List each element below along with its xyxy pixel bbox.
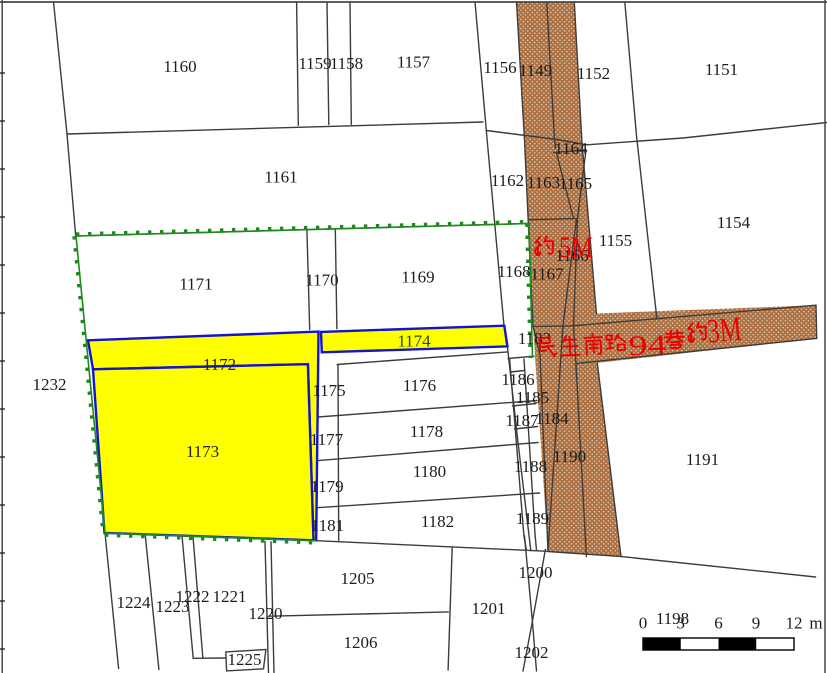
svg-text:1155: 1155 (599, 231, 632, 250)
svg-text:1225: 1225 (228, 650, 262, 669)
svg-text:1186: 1186 (501, 370, 534, 389)
svg-text:1152: 1152 (577, 64, 610, 83)
svg-text:1164: 1164 (554, 139, 588, 158)
svg-text:1174: 1174 (397, 332, 431, 351)
svg-text:1200: 1200 (519, 563, 553, 582)
svg-text:1177: 1177 (310, 430, 344, 449)
svg-text:1201: 1201 (472, 599, 506, 618)
svg-text:1157: 1157 (397, 53, 431, 72)
svg-text:0: 0 (639, 614, 648, 633)
svg-text:1206: 1206 (344, 633, 378, 652)
svg-text:1182: 1182 (421, 512, 454, 531)
svg-text:1163: 1163 (527, 173, 560, 192)
svg-text:1156: 1156 (483, 58, 516, 77)
svg-text:1176: 1176 (403, 376, 436, 395)
svg-text:12: 12 (786, 614, 803, 633)
svg-text:1167: 1167 (530, 265, 564, 284)
svg-text:1162: 1162 (491, 171, 524, 190)
svg-text:1165: 1165 (559, 174, 592, 193)
svg-text:1168: 1168 (497, 262, 530, 281)
svg-text:1205: 1205 (341, 569, 375, 588)
svg-text:1232: 1232 (33, 375, 67, 394)
svg-text:1151: 1151 (705, 60, 738, 79)
svg-text:3M: 3M (706, 311, 743, 351)
svg-text:1175: 1175 (312, 381, 345, 400)
svg-text:1222: 1222 (176, 587, 210, 606)
svg-text:9: 9 (752, 614, 761, 633)
svg-text:1187: 1187 (505, 411, 539, 430)
svg-text:1178: 1178 (410, 422, 443, 441)
svg-text:1173: 1173 (186, 442, 219, 461)
svg-text:1172: 1172 (203, 355, 236, 374)
svg-text:1158: 1158 (330, 54, 363, 73)
svg-text:1154: 1154 (717, 213, 751, 232)
svg-text:5M: 5M (559, 231, 593, 264)
svg-text:1171: 1171 (179, 275, 212, 294)
svg-text:1224: 1224 (117, 593, 152, 612)
svg-text:1189: 1189 (516, 509, 549, 528)
svg-text:1188: 1188 (514, 457, 547, 476)
svg-text:1181: 1181 (311, 516, 344, 535)
svg-text:1161: 1161 (264, 168, 297, 187)
svg-text:6: 6 (714, 614, 723, 633)
svg-text:1159: 1159 (298, 54, 331, 73)
svg-text:1190: 1190 (553, 447, 586, 466)
svg-text:1149: 1149 (519, 61, 552, 80)
svg-text:m: m (809, 614, 822, 633)
svg-text:1180: 1180 (413, 462, 446, 481)
svg-text:1160: 1160 (163, 57, 196, 76)
svg-text:1179: 1179 (310, 477, 343, 496)
svg-text:1185: 1185 (516, 388, 549, 407)
svg-text:1184: 1184 (535, 409, 569, 428)
svg-text:1170: 1170 (305, 271, 338, 290)
svg-text:3: 3 (676, 614, 685, 633)
svg-text:1202: 1202 (515, 643, 549, 662)
svg-text:1191: 1191 (686, 450, 719, 469)
svg-text:94: 94 (628, 330, 667, 363)
svg-text:1220: 1220 (249, 604, 283, 623)
svg-text:1221: 1221 (213, 587, 247, 606)
svg-text:1169: 1169 (401, 268, 434, 287)
